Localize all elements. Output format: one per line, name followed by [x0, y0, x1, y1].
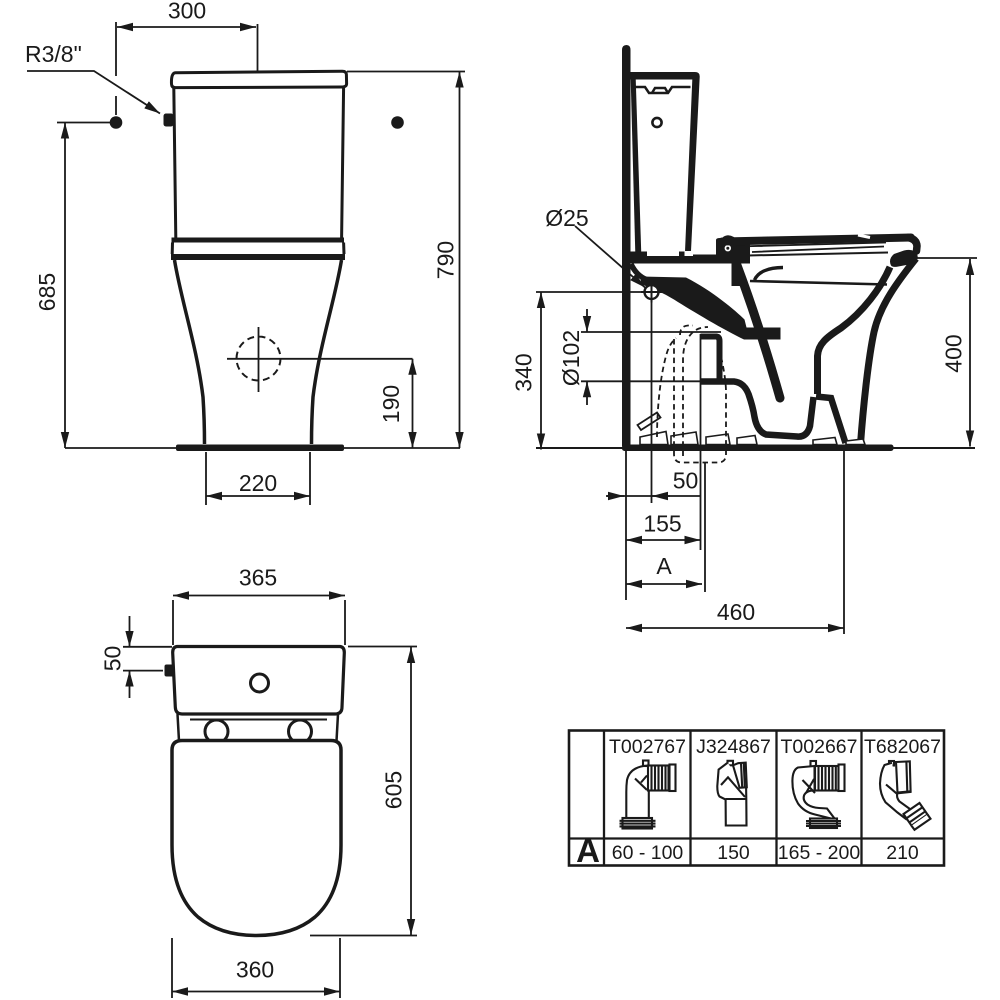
svg-text:T002767: T002767 — [609, 736, 686, 758]
svg-text:R3/8": R3/8" — [25, 41, 82, 67]
svg-text:460: 460 — [717, 599, 755, 625]
svg-text:Ø102: Ø102 — [558, 330, 584, 386]
svg-text:150: 150 — [717, 842, 750, 864]
svg-text:A: A — [576, 832, 600, 869]
svg-text:A: A — [656, 553, 672, 579]
svg-text:50: 50 — [100, 646, 126, 672]
svg-text:60 - 100: 60 - 100 — [612, 842, 684, 864]
svg-text:Ø25: Ø25 — [545, 205, 588, 231]
svg-text:T682067: T682067 — [864, 736, 941, 758]
svg-text:340: 340 — [511, 353, 537, 391]
svg-text:210: 210 — [886, 842, 919, 864]
svg-text:605: 605 — [381, 771, 407, 809]
svg-text:360: 360 — [236, 957, 274, 983]
svg-text:400: 400 — [941, 334, 967, 372]
svg-text:T002667: T002667 — [781, 736, 858, 758]
svg-text:685: 685 — [34, 273, 60, 311]
svg-text:165 - 200: 165 - 200 — [778, 842, 861, 864]
svg-text:155: 155 — [643, 511, 681, 537]
svg-text:J324867: J324867 — [696, 736, 771, 758]
svg-text:300: 300 — [168, 0, 206, 24]
svg-text:365: 365 — [239, 565, 277, 591]
svg-text:790: 790 — [433, 241, 459, 279]
svg-text:190: 190 — [378, 385, 404, 423]
svg-text:50: 50 — [673, 468, 699, 494]
svg-text:220: 220 — [239, 470, 277, 496]
